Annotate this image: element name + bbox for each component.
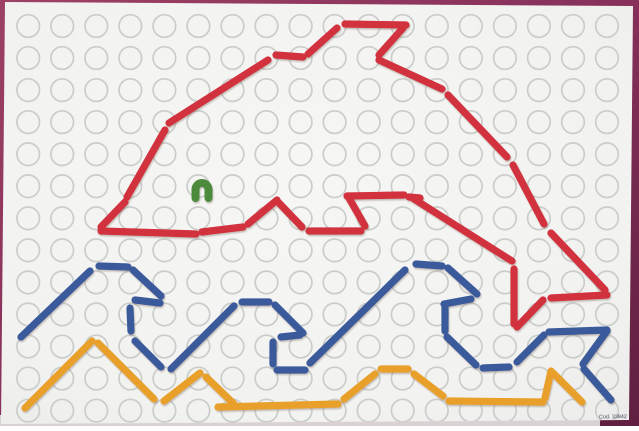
svg-text:Cod. 33842: Cod. 33842: [599, 414, 627, 420]
